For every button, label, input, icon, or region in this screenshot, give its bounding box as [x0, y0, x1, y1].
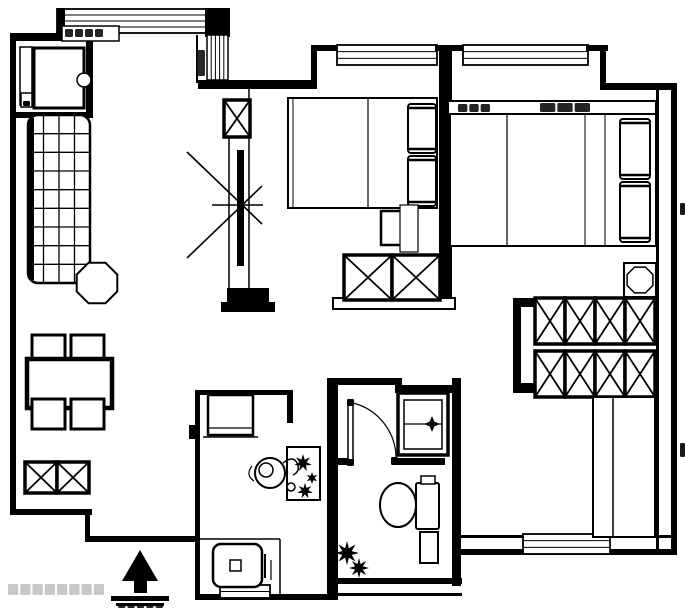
bath-door-leaf — [348, 401, 353, 462]
plant-2 — [349, 558, 369, 578]
toilet-drain-box — [420, 532, 438, 563]
vent-shaft — [207, 35, 228, 80]
entry-glyphs — [137, 604, 144, 608]
wall-top-left-stub — [10, 33, 62, 39]
fridge — [208, 395, 253, 435]
door-diagonal-2 — [187, 186, 262, 258]
watermark-text — [45, 584, 55, 595]
wall-bath-bottom-outer — [330, 593, 462, 596]
wall-left-outer — [10, 33, 16, 515]
bed1-pillow-bottom — [408, 156, 436, 206]
sofa-back-bar — [29, 118, 34, 280]
edge-mark-1 — [680, 203, 685, 215]
bed1-pillow-top — [408, 104, 436, 153]
entry-glyphs — [146, 604, 153, 608]
watermark-text — [57, 584, 67, 595]
wall-b2-step — [600, 45, 606, 89]
sink-handle — [249, 466, 254, 481]
edge-mark-2 — [680, 443, 685, 457]
watermark-text — [20, 584, 30, 595]
shaft-label-text — [197, 50, 205, 76]
washing-machine — [34, 48, 84, 108]
balcony-label-text — [85, 29, 93, 37]
watermark-text — [94, 584, 104, 595]
entry-arrow-head — [122, 550, 158, 581]
floor-plan-canvas — [0, 0, 685, 608]
watermark-text — [69, 584, 79, 595]
bed2-label-text-1 — [481, 104, 490, 112]
wall-top-center — [198, 80, 317, 89]
wall-bath-top — [332, 378, 402, 385]
wall-living-bottom — [10, 509, 92, 515]
toilet-cap — [421, 476, 435, 484]
wall-entry — [85, 536, 197, 542]
bed2-label-text-2 — [557, 103, 572, 112]
wall-right-outer — [671, 83, 677, 555]
plant-1 — [335, 541, 359, 565]
dining-chair-br — [71, 399, 104, 429]
bedroom2-window — [463, 45, 588, 65]
wall-kitchen-left — [195, 390, 200, 600]
slide-door-block — [227, 288, 269, 303]
watermark-text — [33, 584, 43, 595]
dining-chair-bl — [32, 399, 65, 429]
wall-bath-bottom — [327, 578, 462, 584]
kitchen-sink-drain — [230, 560, 241, 571]
door-hinge-mark-top — [347, 399, 354, 406]
bath-door-arc — [353, 403, 396, 459]
toilet-tank — [416, 483, 439, 529]
bedroom1-window — [337, 45, 437, 65]
wall-bath-door-right — [395, 458, 445, 465]
side-table — [77, 263, 118, 304]
door-hinge-mark-bottom — [347, 459, 354, 466]
closet-mark — [23, 101, 30, 106]
wall-b1-top-vert — [311, 45, 317, 86]
wall-kitchen-flange — [189, 425, 195, 439]
entry-threshold-1 — [111, 596, 169, 601]
entry-glyphs — [127, 604, 134, 608]
toilet-bowl — [380, 483, 416, 527]
entry-glyphs — [156, 604, 163, 608]
watermark-text — [82, 584, 92, 595]
balcony-label-text — [95, 29, 103, 37]
wall-br-inner-left — [455, 535, 525, 538]
entry-arrow-shaft — [134, 581, 147, 593]
sink-round-knob — [287, 483, 295, 491]
bed2-label-text-1 — [469, 104, 478, 112]
balcony-label-text — [65, 29, 73, 37]
balcony-right-block — [205, 8, 230, 37]
washer-knob — [77, 73, 91, 87]
nightstand1-side — [400, 205, 418, 252]
bed2-pillow-top — [620, 119, 650, 179]
watermark-text — [8, 584, 18, 595]
wall-bath-right — [452, 378, 461, 555]
bed2-pillow-bottom — [620, 182, 650, 242]
slide-door-foot — [221, 302, 275, 312]
bed2-label-text-1 — [458, 104, 467, 112]
bed2-label-text-2 — [575, 103, 590, 112]
desk — [593, 397, 655, 537]
balcony-label-text — [75, 29, 83, 37]
wall-kitchen-bath — [327, 378, 338, 600]
wardrobe-stub-side — [513, 298, 521, 390]
floor-plan-page — [0, 0, 685, 608]
door-arc-mark — [391, 457, 398, 465]
sink-round-inner — [259, 463, 273, 477]
wall-kitchen-entry-stub — [287, 390, 293, 423]
bed2-label-text-2 — [540, 103, 555, 112]
wall-top-right — [600, 83, 676, 90]
nightstand2-lamp — [627, 267, 653, 293]
entry-glyphs — [118, 604, 125, 608]
door-diagonal-1 — [187, 152, 262, 224]
